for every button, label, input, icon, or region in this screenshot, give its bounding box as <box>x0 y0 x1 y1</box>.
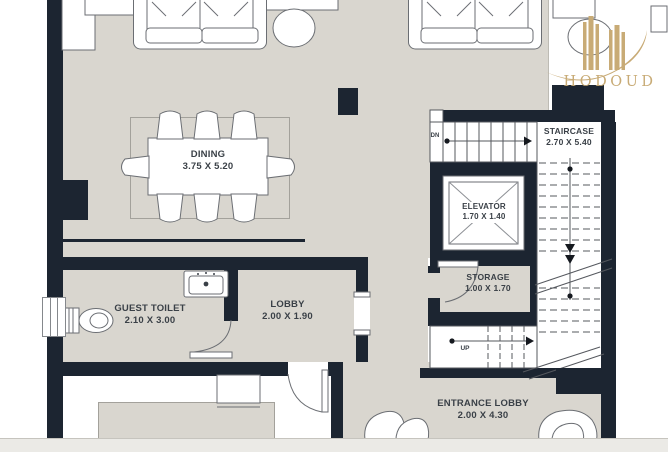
column-botright-wrap <box>556 368 603 394</box>
room-label-entrance-lobby: ENTRANCE LOBBY 2.00 X 4.30 <box>390 398 576 423</box>
side-table-oval <box>273 9 315 47</box>
bottom-room-door <box>288 370 328 412</box>
sideboard <box>217 375 260 407</box>
room-dims: 1.00 X 1.70 <box>444 283 532 294</box>
room-label-guest-toilet: GUEST TOILET 2.10 X 3.00 <box>75 303 225 328</box>
room-dims: 3.75 X 5.20 <box>148 161 268 173</box>
room-name: LOBBY <box>270 299 304 310</box>
floor-plan: DINING 3.75 X 5.20 GUEST TOILET 2.10 X 3… <box>0 0 668 452</box>
room-label-staircase: STAIRCASE 2.70 X 5.40 <box>536 126 602 148</box>
dining-chair <box>157 194 183 222</box>
hodoud-logo-text: HODOUD <box>552 74 668 90</box>
column-left-wrap <box>62 180 88 220</box>
dining-chair <box>267 156 295 178</box>
dining-chair <box>194 111 220 139</box>
dining-chair <box>122 156 150 178</box>
room-name: STORAGE <box>466 272 509 282</box>
sofa <box>409 0 542 49</box>
room-dims: 2.70 X 5.40 <box>536 137 602 148</box>
stair-annotation-up: UP <box>456 345 474 353</box>
stair-annotation-down: DN <box>427 133 443 141</box>
dining-chair <box>157 111 183 139</box>
room-name: GUEST TOILET <box>114 303 185 314</box>
dining-chair <box>231 194 257 222</box>
room-label-dining: DINING 3.75 X 5.20 <box>148 149 268 174</box>
bottom-page-strip <box>0 438 668 452</box>
dining-chair <box>231 111 257 139</box>
room-name: DINING <box>191 149 225 160</box>
room-name: ELEVATOR <box>461 202 507 212</box>
hodoud-logo-mark <box>546 16 647 80</box>
room-label-storage: STORAGE 1.00 X 1.70 <box>444 272 532 294</box>
room-label-lobby: LOBBY 2.00 X 1.90 <box>240 299 335 324</box>
room-dims: 1.70 X 1.40 <box>461 212 506 222</box>
room-dims: 2.00 X 4.30 <box>390 410 576 422</box>
lobby-opening <box>354 292 370 335</box>
sofa <box>134 0 267 49</box>
dining-chair <box>194 194 220 222</box>
room-dims: 2.00 X 1.90 <box>240 311 335 323</box>
room-name: STAIRCASE <box>544 126 594 136</box>
sink-fixture <box>184 271 228 297</box>
window-left-wall <box>42 297 66 337</box>
room-dims: 2.10 X 3.00 <box>75 315 225 327</box>
room-label-elevator: ELEVATOR 1.70 X 1.40 <box>444 202 524 223</box>
room-name: ENTRANCE LOBBY <box>437 398 528 409</box>
